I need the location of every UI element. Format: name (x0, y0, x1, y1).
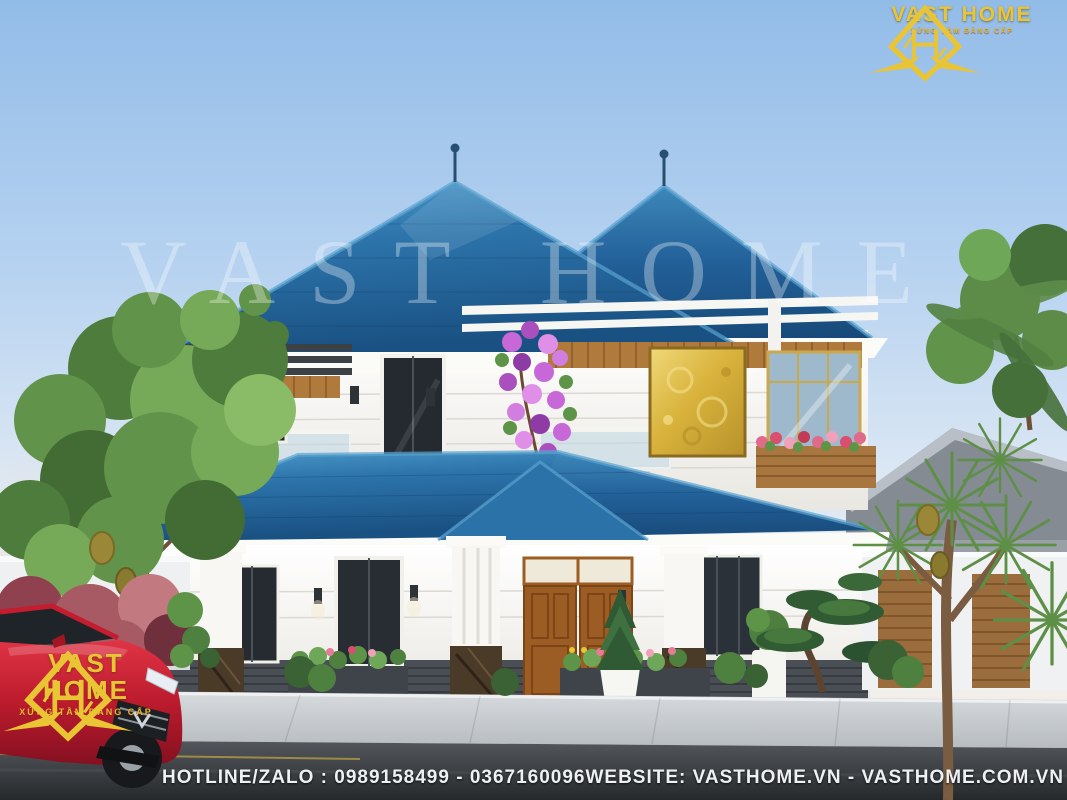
logo-bottom-left: VAST HOME XỨNG TẦM ĐẲNG CẤP (2, 650, 170, 717)
ground-window-mid (336, 558, 402, 666)
vast-home-logo-icon (869, 4, 981, 84)
footer-contact-bar: HOTLINE/ZALO : 0989158499 - 0367160096 W… (162, 767, 1061, 789)
vast-home-logo-icon (2, 650, 134, 744)
gold-art-panel (650, 348, 745, 456)
website-text: WEBSITE: VASTHOME.VN - VASTHOME.COM.VN (585, 767, 1064, 789)
flower-box (756, 431, 876, 488)
potted-tree (746, 608, 789, 708)
porch-column (194, 544, 248, 708)
logo-top-right: VAST HOME XỨNG TẦM ĐẲNG CẤP (869, 4, 1055, 35)
hotline-text: HOTLINE/ZALO : 0989158499 - 0367160096 (162, 767, 585, 789)
watermark-text: VAST HOME (120, 226, 947, 318)
corner-glass-window (695, 556, 761, 656)
poster: VAST HOME VAST HOME XỨNG TẦM ĐẲNG CẤP VA… (0, 0, 1067, 800)
